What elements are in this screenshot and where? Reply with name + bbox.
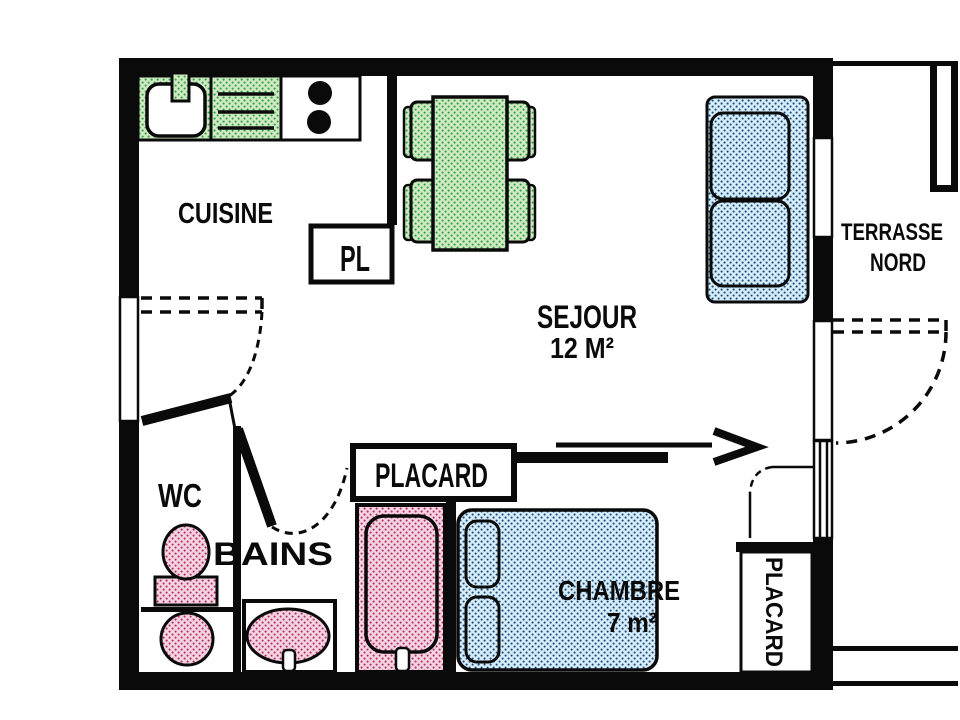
label-chambre-area: 7 m² — [607, 607, 657, 638]
stove-burner-1 — [308, 81, 332, 105]
sofa-cushion-top — [711, 113, 789, 199]
wall-right-middle — [813, 237, 833, 321]
window-right-upper — [814, 138, 832, 237]
entry-door-opening-left-wall — [120, 297, 138, 421]
terrace-divider-cap — [930, 185, 958, 192]
label-sejour-area: 12 M² — [550, 333, 614, 365]
bathtub-faucet — [396, 648, 409, 671]
floor-plan-drawing: CUISINE PL SEJOUR 12 M² TERRASSE NORD WC… — [0, 0, 960, 720]
wall-sejour-chambre — [513, 452, 668, 463]
wc-round-fixture — [161, 613, 213, 665]
wall-bains-chambre — [446, 500, 456, 672]
toilet-bowl — [163, 525, 209, 579]
pillow-bottom — [466, 597, 499, 662]
terrace-divider-left-line — [930, 61, 937, 192]
wc-divider-line — [141, 607, 235, 612]
stove-burner-2 — [307, 110, 331, 134]
placard-chambre-top-wall — [736, 542, 814, 552]
label-wc: WC — [158, 477, 202, 514]
pillow-top — [466, 521, 499, 587]
wall-top — [119, 58, 833, 76]
terrace-bottom-line-upper — [822, 646, 958, 651]
label-cuisine: CUISINE — [178, 198, 273, 230]
sofa — [707, 97, 808, 302]
terrace-top-wall — [833, 61, 958, 66]
toilet-tank — [155, 577, 217, 605]
label-pl: PL — [340, 238, 370, 279]
terrace-bottom-line-lower — [822, 681, 958, 686]
label-terrasse: TERRASSE — [841, 219, 943, 246]
label-placard-sejour: PLACARD — [375, 457, 488, 495]
label-sejour: SEJOUR — [537, 299, 637, 335]
dining-table — [433, 97, 507, 250]
kitchen-sink-faucet — [172, 73, 189, 101]
wall-bottom — [119, 672, 833, 690]
wc-fixtures — [155, 525, 217, 665]
kitchen-counter-unit — [211, 76, 281, 140]
wall-right-upper — [813, 58, 833, 138]
balcony-door-panel — [814, 321, 832, 440]
terrace-divider-right-line — [951, 61, 958, 192]
label-chambre: CHAMBRE — [558, 575, 680, 606]
kitchen-counter — [138, 73, 360, 140]
wall-right-lower — [813, 538, 833, 690]
label-terrasse-nord: NORD — [870, 249, 926, 277]
bathtub — [366, 516, 437, 652]
label-placard-chambre: PLACARD — [760, 557, 787, 667]
sofa-cushion-bottom — [711, 201, 789, 286]
floor-plan-page: CUISINE PL SEJOUR 12 M² TERRASSE NORD WC… — [0, 0, 960, 720]
window-right-lower — [814, 441, 832, 538]
wall-kitchen-sejour — [387, 74, 397, 225]
washbasin-faucet — [283, 650, 295, 671]
label-bains: BAINS — [213, 536, 333, 572]
